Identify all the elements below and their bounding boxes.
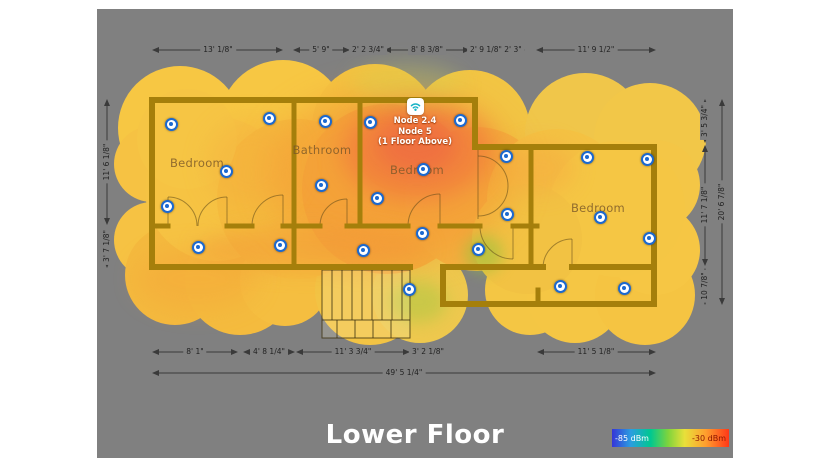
legend-max-label: -30 dBm	[692, 434, 726, 443]
wifi-icon	[406, 98, 423, 115]
measurement-point[interactable]	[371, 192, 384, 205]
measurement-point[interactable]	[315, 179, 328, 192]
measurement-point[interactable]	[472, 243, 485, 256]
measurement-point[interactable]	[161, 200, 174, 213]
measurement-point[interactable]	[501, 208, 514, 221]
measurement-point[interactable]	[274, 239, 287, 252]
wifi-survey-screenshot: 13' 1/8" 5' 9" 2' 2 3/4" 8' 8 3/8" 2' 9 …	[0, 0, 830, 467]
measurement-point[interactable]	[594, 211, 607, 224]
measurement-point[interactable]	[581, 151, 594, 164]
floorplan-canvas: 13' 1/8" 5' 9" 2' 2 3/4" 8' 8 3/8" 2' 9 …	[97, 9, 733, 458]
measurement-point[interactable]	[500, 150, 513, 163]
measurement-point[interactable]	[357, 244, 370, 257]
signal-legend: -85 dBm -30 dBm	[612, 429, 729, 447]
legend-min-label: -85 dBm	[615, 434, 649, 443]
measurement-point[interactable]	[643, 232, 656, 245]
node-label-line: Node 2.4	[378, 116, 452, 127]
measurement-point[interactable]	[165, 118, 178, 131]
measurement-point[interactable]	[416, 227, 429, 240]
measurement-point[interactable]	[618, 282, 631, 295]
node-label-line: Node 5	[378, 127, 452, 138]
measurement-point[interactable]	[417, 163, 430, 176]
measurement-point[interactable]	[554, 280, 567, 293]
node-marker[interactable]: Node 2.4 Node 5 (1 Floor Above)	[378, 98, 452, 148]
measurement-point[interactable]	[403, 283, 416, 296]
measurement-point[interactable]	[319, 115, 332, 128]
measurement-point[interactable]	[641, 153, 654, 166]
measurement-point[interactable]	[263, 112, 276, 125]
measurement-point[interactable]	[454, 114, 467, 127]
measurement-point[interactable]	[220, 165, 233, 178]
measurement-point[interactable]	[192, 241, 205, 254]
measurement-points-layer	[97, 9, 733, 458]
node-label-line: (1 Floor Above)	[378, 137, 452, 148]
measurement-point[interactable]	[364, 116, 377, 129]
